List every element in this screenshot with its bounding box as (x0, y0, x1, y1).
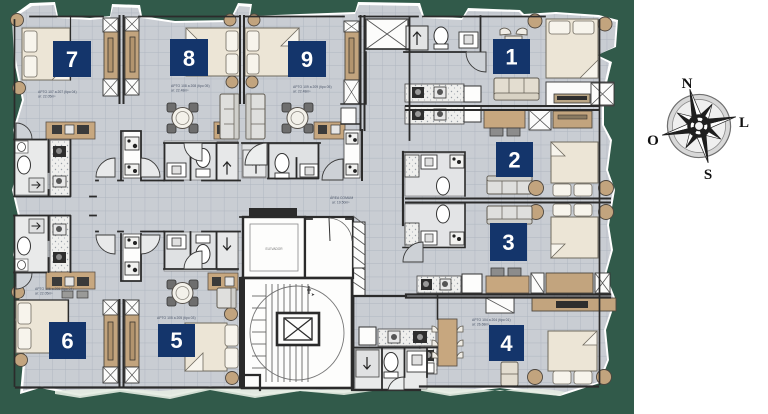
svg-text:APTO 106 a 206 (tipo 04): APTO 106 a 206 (tipo 04) (35, 287, 74, 291)
svg-text:1: 1 (505, 45, 517, 70)
svg-text:ELEVADOR: ELEVADOR (265, 247, 283, 251)
svg-text:APTO 104 a 204 (tipo 01): APTO 104 a 204 (tipo 01) (472, 318, 511, 322)
svg-text:ÁREA COMUM: ÁREA COMUM (330, 196, 353, 200)
svg-text:9: 9 (301, 47, 313, 72)
svg-text:APTO 105 a 205 (tipo 03): APTO 105 a 205 (tipo 03) (157, 316, 196, 320)
svg-text:7: 7 (66, 47, 78, 72)
svg-text:ar: 22.05m²: ar: 22.05m² (38, 95, 56, 99)
svg-text:APTO 107 a 207 (tipo 04): APTO 107 a 207 (tipo 04) (38, 90, 77, 94)
svg-text:ar: 22.48m²: ar: 22.48m² (171, 89, 189, 93)
svg-text:3: 3 (502, 230, 514, 255)
svg-text:4: 4 (500, 331, 513, 356)
svg-text:ar: 22.05m²: ar: 22.05m² (35, 292, 53, 296)
svg-text:2: 2 (508, 148, 520, 173)
svg-text:ar: 26.68m²: ar: 26.68m² (472, 323, 490, 327)
svg-text:L: L (739, 115, 749, 131)
svg-text:➤: ➤ (311, 292, 315, 297)
svg-text:ar: 22.48m²: ar: 22.48m² (293, 90, 311, 94)
svg-text:APTO 108 a 208 (tipo 05): APTO 108 a 208 (tipo 05) (171, 84, 210, 88)
svg-text:APTO 109 a 209 (tipo 05): APTO 109 a 209 (tipo 05) (293, 85, 332, 89)
svg-text:5: 5 (170, 328, 182, 353)
svg-text:ar: 19.50m²: ar: 19.50m² (332, 201, 350, 205)
svg-text:8: 8 (183, 46, 195, 71)
svg-text:N: N (682, 76, 693, 92)
svg-text:6: 6 (61, 329, 73, 354)
svg-text:O: O (647, 133, 659, 149)
svg-text:S: S (704, 167, 712, 183)
